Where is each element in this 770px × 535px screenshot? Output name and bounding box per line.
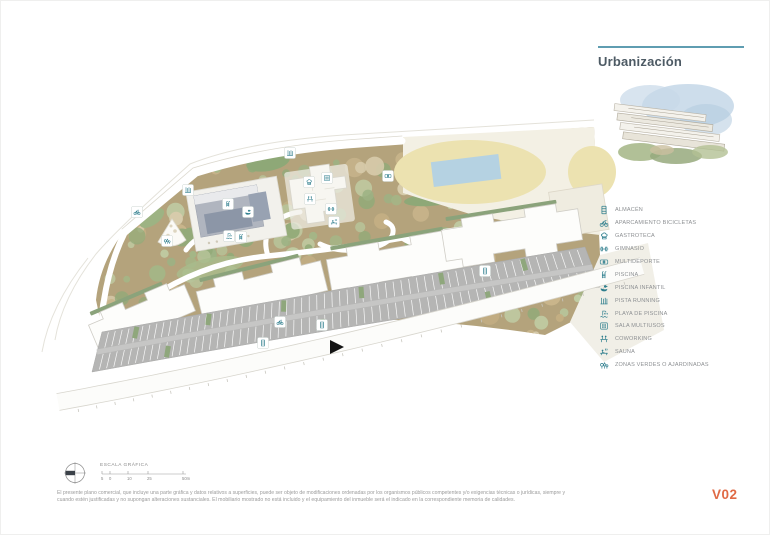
legend-item: PLAYA DE PISCINA bbox=[599, 307, 764, 320]
scale-tick-label: 50m bbox=[182, 476, 191, 481]
legend-item: GIMNASIO bbox=[599, 243, 764, 256]
piscina-infantil-icon bbox=[599, 283, 609, 293]
compass bbox=[64, 462, 86, 484]
plan-marker-gastroteca bbox=[304, 177, 315, 188]
legend-item: COWORKING bbox=[599, 333, 764, 346]
plan-sheet: ESCALA GRÁFICA 50102550m El presente pla… bbox=[0, 0, 770, 535]
scale-tick-label: 5 bbox=[101, 476, 104, 481]
piscina-icon bbox=[599, 270, 609, 280]
legend-item-label: COWORKING bbox=[615, 337, 652, 343]
legend-item-label: PLAYA DE PISCINA bbox=[615, 311, 667, 317]
legend-item: MULTIDEPORTE bbox=[599, 256, 764, 269]
plan-marker-almacen bbox=[317, 320, 328, 331]
sala-multiusos-icon bbox=[599, 321, 609, 331]
plan-marker-multideporte bbox=[383, 171, 394, 182]
legend-item: PISCINA INFANTIL bbox=[599, 281, 764, 294]
sauna-icon bbox=[599, 347, 609, 357]
legend-item: SAUNA bbox=[599, 346, 764, 359]
plan-marker-aparcamiento-bicicletas bbox=[132, 207, 143, 218]
building-rendering bbox=[606, 80, 734, 168]
page-title: Urbanización bbox=[598, 54, 682, 69]
multideporte-icon bbox=[599, 257, 609, 267]
version-label: V02 bbox=[712, 487, 738, 502]
scale-tick-label: 25 bbox=[147, 476, 152, 481]
gastroteca-icon bbox=[599, 231, 609, 241]
disclaimer: El presente plano comercial, que incluye… bbox=[57, 490, 566, 503]
legend-item-label: SALA MULTIUSOS bbox=[615, 324, 665, 330]
playa-de-piscina-icon bbox=[599, 309, 609, 319]
disclaimer-line1: El presente plano comercial, que incluye… bbox=[57, 490, 566, 496]
legend-item: SALA MULTIUSOS bbox=[599, 320, 764, 333]
plan-marker-pista-running bbox=[285, 148, 296, 159]
plan-marker-gimnasio bbox=[326, 204, 337, 215]
plan-marker-playa-de-piscina bbox=[224, 231, 235, 242]
pista-running-icon bbox=[599, 296, 609, 306]
plan-marker-almacen bbox=[258, 338, 269, 349]
legend-item: PISCINA bbox=[599, 268, 764, 281]
scale-bar: ESCALA GRÁFICA 50102550m bbox=[100, 461, 191, 481]
plan-marker-coworking bbox=[305, 194, 316, 205]
legend-item-label: PISTA RUNNING bbox=[615, 298, 660, 304]
legend-item-label: PISCINA INFANTIL bbox=[615, 285, 665, 291]
legend-item: ZONAS VERDES O AJARDINADAS bbox=[599, 359, 764, 372]
plan-marker-piscina-infantil bbox=[243, 207, 254, 218]
plan-marker-piscina bbox=[223, 199, 234, 210]
amenity-building bbox=[284, 162, 356, 230]
legend-item: GASTROTECA bbox=[599, 230, 764, 243]
legend-item: ALMACÉN bbox=[599, 204, 764, 217]
scale-tick-label: 10 bbox=[127, 476, 132, 481]
zonas-verdes-icon bbox=[599, 360, 609, 370]
legend-item-label: GIMNASIO bbox=[615, 246, 644, 252]
coworking-icon bbox=[599, 334, 609, 344]
plan-marker-piscina bbox=[236, 232, 247, 243]
legend-item-label: GASTROTECA bbox=[615, 233, 655, 239]
disclaimer-line2: cuando estén justificadas y no supongan … bbox=[57, 497, 515, 503]
almacen-icon bbox=[599, 205, 609, 215]
plan-marker-sauna bbox=[329, 217, 340, 228]
plan-marker-pista-running bbox=[183, 185, 194, 196]
aparcamiento-bicicletas-icon bbox=[599, 218, 609, 228]
plan-marker-aparcamiento-bicicletas bbox=[275, 317, 286, 328]
legend-item-label: MULTIDEPORTE bbox=[615, 259, 660, 265]
legend-item: APARCAMIENTO BICICLETAS bbox=[599, 217, 764, 230]
legend-item: PISTA RUNNING bbox=[599, 294, 764, 307]
legend-item-label: PISCINA bbox=[615, 272, 638, 278]
plan-marker-zonas-verdes bbox=[162, 236, 173, 247]
plan-marker-almacen bbox=[480, 266, 491, 277]
scale-bar-label: ESCALA GRÁFICA bbox=[100, 461, 149, 468]
header-rule bbox=[598, 46, 744, 48]
legend: ALMACÉNAPARCAMIENTO BICICLETASGASTROTECA… bbox=[599, 204, 764, 372]
legend-item-label: ZONAS VERDES O AJARDINADAS bbox=[615, 362, 709, 368]
legend-item-label: SAUNA bbox=[615, 349, 635, 355]
scale-tick-label: 0 bbox=[109, 476, 112, 481]
legend-item-label: ALMACÉN bbox=[615, 208, 643, 214]
plan-marker-sala-multiusos bbox=[322, 173, 333, 184]
legend-item-label: APARCAMIENTO BICICLETAS bbox=[615, 221, 696, 227]
gimnasio-icon bbox=[599, 244, 609, 254]
